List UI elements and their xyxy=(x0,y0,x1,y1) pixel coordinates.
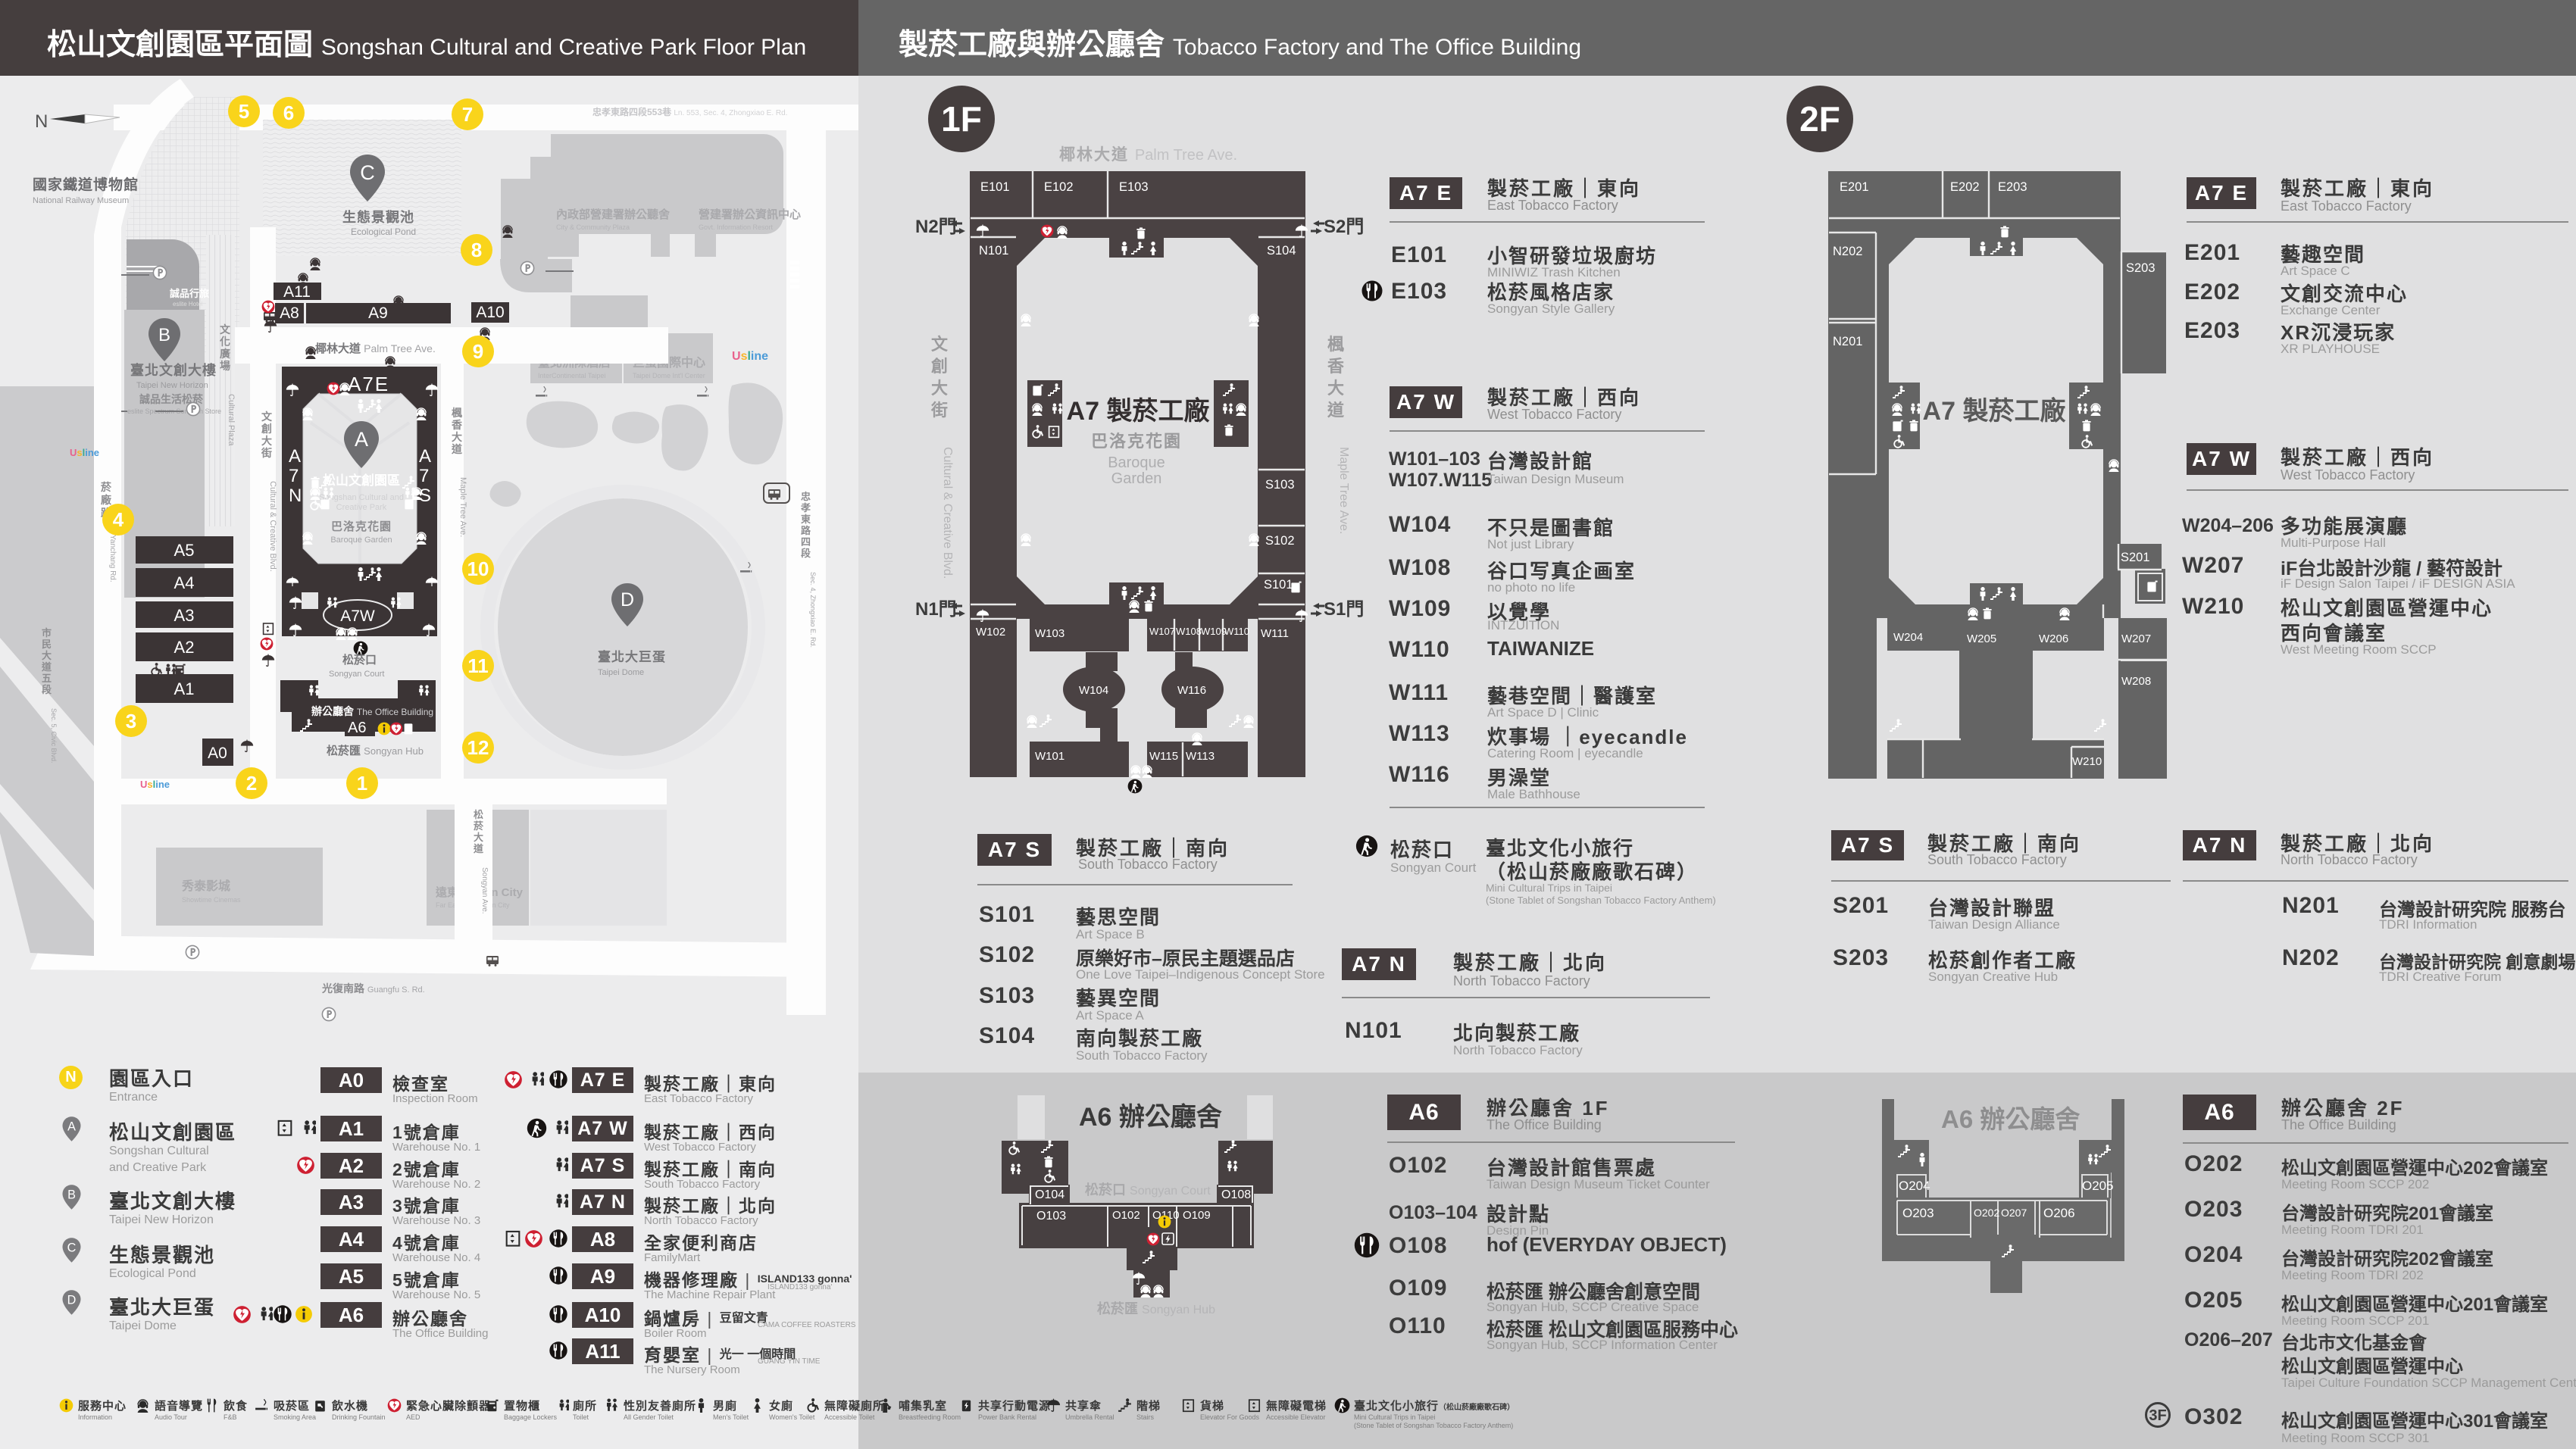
svg-text:Baroque: Baroque xyxy=(1108,454,1165,471)
svg-text:Cultural & Creative Blvd.: Cultural & Creative Blvd. xyxy=(268,481,277,572)
svg-text:10: 10 xyxy=(467,557,489,580)
svg-text:文化廣場: 文化廣場 xyxy=(220,323,231,372)
svg-text:松菸口: 松菸口 xyxy=(342,653,377,667)
svg-text:1F: 1F xyxy=(941,99,982,139)
svg-text:W210: W210 xyxy=(2072,755,2102,768)
svg-text:O102: O102 xyxy=(1112,1209,1140,1222)
svg-text:松菸匯 Songyan Hub: 松菸匯 Songyan Hub xyxy=(327,744,424,757)
svg-text:A8: A8 xyxy=(280,304,299,322)
svg-text:楓香大道: 楓香大道 xyxy=(451,407,463,455)
svg-text:N202: N202 xyxy=(1833,245,1862,258)
svg-text:S104: S104 xyxy=(1267,244,1296,258)
svg-text:市民大道五段: 市民大道五段 xyxy=(41,627,52,695)
svg-text:E202: E202 xyxy=(1950,180,1980,194)
svg-text:A6: A6 xyxy=(348,720,366,736)
svg-text:文創大街: 文創大街 xyxy=(930,335,949,420)
svg-text:E103: E103 xyxy=(1119,180,1149,194)
svg-text:A5: A5 xyxy=(174,541,195,560)
svg-text:A4: A4 xyxy=(174,573,195,592)
svg-text:誠品行旅: 誠品行旅 xyxy=(170,288,209,299)
svg-text:椰林大道 Palm Tree Ave.: 椰林大道 Palm Tree Ave. xyxy=(315,342,436,355)
svg-text:巴洛克花園: 巴洛克花園 xyxy=(331,520,392,533)
svg-text:O103: O103 xyxy=(1036,1210,1066,1223)
svg-text:Taipei New Horizon: Taipei New Horizon xyxy=(136,381,208,390)
svg-text:S203: S203 xyxy=(2126,261,2156,275)
svg-text:巴洛克花園: 巴洛克花園 xyxy=(1091,432,1182,451)
svg-text:營建署辦公資訊中心: 營建署辦公資訊中心 xyxy=(699,208,801,221)
svg-text:E101: E101 xyxy=(980,180,1010,194)
svg-text:Garden: Garden xyxy=(1111,470,1162,487)
svg-text:生態景觀池: 生態景觀池 xyxy=(342,209,414,225)
svg-text:A3: A3 xyxy=(174,606,195,625)
svg-text:Govt. Information Resort: Govt. Information Resort xyxy=(699,223,774,231)
svg-text:W109: W109 xyxy=(1201,626,1227,637)
svg-text:Usline: Usline xyxy=(70,447,99,458)
svg-text:Maple Tree Ave.: Maple Tree Ave. xyxy=(1337,447,1350,534)
svg-text:B: B xyxy=(67,1188,76,1201)
svg-text:eslite Hotel: eslite Hotel xyxy=(173,301,203,308)
svg-text:松菸大道: 松菸大道 xyxy=(473,809,484,854)
svg-text:N201: N201 xyxy=(1833,335,1862,348)
svg-text:Maple Tree Ave.: Maple Tree Ave. xyxy=(458,477,467,537)
svg-text:A0: A0 xyxy=(208,745,227,762)
svg-text:W104: W104 xyxy=(1079,684,1108,697)
svg-text:W115: W115 xyxy=(1149,750,1178,763)
svg-text:A6 辦公廳舍: A6 辦公廳舍 xyxy=(1941,1105,2080,1133)
svg-text:InterContinental Taipei: InterContinental Taipei xyxy=(538,372,605,379)
svg-text:秀泰影城: 秀泰影城 xyxy=(181,879,230,893)
svg-text:Taipei Dome Int'l Center: Taipei Dome Int'l Center xyxy=(633,372,705,379)
svg-text:W207: W207 xyxy=(2121,632,2151,645)
svg-text:W108: W108 xyxy=(1176,626,1202,637)
svg-text:Usline: Usline xyxy=(732,350,768,363)
svg-text:O207: O207 xyxy=(2001,1207,2027,1219)
svg-text:S101: S101 xyxy=(1264,578,1293,592)
svg-text:N1門: N1門 xyxy=(915,599,957,620)
svg-text:E203: E203 xyxy=(1998,180,2027,194)
svg-text:O206: O206 xyxy=(2043,1206,2075,1220)
svg-text:C: C xyxy=(360,161,375,184)
svg-text:文創大街: 文創大街 xyxy=(261,411,273,459)
svg-text:Taipei Dome: Taipei Dome xyxy=(598,668,644,677)
svg-text:8: 8 xyxy=(471,239,482,261)
svg-text:Yanchang Rd.: Yanchang Rd. xyxy=(108,535,117,582)
svg-text:2F: 2F xyxy=(1799,99,1840,139)
svg-text:12: 12 xyxy=(467,736,489,759)
svg-text:Creative Park: Creative Park xyxy=(336,503,387,512)
svg-text:A: A xyxy=(355,428,368,451)
svg-text:W107: W107 xyxy=(1149,626,1175,637)
svg-text:11: 11 xyxy=(467,654,489,677)
svg-text:B: B xyxy=(158,325,170,345)
svg-text:國家鐵道博物館: 國家鐵道博物館 xyxy=(33,176,139,193)
svg-text:臺北文創大樓: 臺北文創大樓 xyxy=(130,362,217,378)
svg-text:City & Community Plaza: City & Community Plaza xyxy=(556,223,630,231)
svg-text:E102: E102 xyxy=(1044,180,1074,194)
svg-text:9: 9 xyxy=(473,340,483,363)
svg-text:W205: W205 xyxy=(1967,632,1996,645)
svg-text:A2: A2 xyxy=(174,638,195,657)
svg-text:E201: E201 xyxy=(1840,180,1869,194)
svg-text:A7E: A7E xyxy=(348,373,389,395)
svg-text:Cultural & Creative Blvd.: Cultural & Creative Blvd. xyxy=(941,447,954,579)
svg-text:O202: O202 xyxy=(1974,1207,1999,1219)
svg-text:S201: S201 xyxy=(2121,551,2150,564)
svg-text:O204: O204 xyxy=(1899,1179,1930,1193)
svg-text:N2門: N2門 xyxy=(915,217,957,237)
svg-text:A7 製菸工廠: A7 製菸工廠 xyxy=(1923,396,2066,426)
svg-text:A: A xyxy=(67,1120,76,1133)
svg-text:Usline: Usline xyxy=(140,779,170,790)
svg-text:W113: W113 xyxy=(1186,750,1215,763)
svg-text:S1門: S1門 xyxy=(1324,599,1364,620)
svg-text:松菸匯 Songyan Hub: 松菸匯 Songyan Hub xyxy=(1097,1301,1215,1316)
svg-text:W206: W206 xyxy=(2039,632,2068,645)
svg-text:W208: W208 xyxy=(2121,675,2151,688)
svg-text:A9: A9 xyxy=(368,304,388,322)
svg-text:Songyan Court: Songyan Court xyxy=(329,670,384,679)
svg-text:1: 1 xyxy=(357,772,367,795)
svg-text:N: N xyxy=(35,111,48,132)
svg-text:臺北大巨蛋: 臺北大巨蛋 xyxy=(598,649,666,664)
svg-text:5: 5 xyxy=(239,100,249,123)
svg-text:忠孝東路四段: 忠孝東路四段 xyxy=(800,491,811,559)
svg-text:W110: W110 xyxy=(1224,626,1249,637)
svg-text:O108: O108 xyxy=(1221,1188,1251,1201)
svg-text:Ecological Pond: Ecological Pond xyxy=(351,226,416,237)
svg-text:D: D xyxy=(67,1293,77,1307)
svg-text:S103: S103 xyxy=(1265,478,1295,492)
svg-text:O109: O109 xyxy=(1183,1209,1211,1222)
svg-text:A7 製菸工廠: A7 製菸工廠 xyxy=(1067,396,1210,426)
svg-text:椰林大道 Palm Tree Ave.: 椰林大道 Palm Tree Ave. xyxy=(1059,145,1237,164)
svg-text:辦公廳舍 The Office Building: 辦公廳舍 The Office Building xyxy=(311,705,433,717)
svg-text:Sec. 4, Zhongxiao E. Rd.: Sec. 4, Zhongxiao E. Rd. xyxy=(809,572,817,648)
svg-text:S102: S102 xyxy=(1265,534,1295,548)
svg-text:2: 2 xyxy=(246,772,257,795)
svg-text:3: 3 xyxy=(126,710,136,732)
svg-text:A10: A10 xyxy=(476,304,504,321)
svg-text:楓香大道: 楓香大道 xyxy=(1327,335,1345,420)
svg-text:Baroque Garden: Baroque Garden xyxy=(330,536,392,545)
svg-text:A6 辦公廳舍: A6 辦公廳舍 xyxy=(1079,1102,1222,1132)
svg-text:Showtime Cinemas: Showtime Cinemas xyxy=(182,896,241,904)
svg-text:Sec. 5, Civic Blvd.: Sec. 5, Civic Blvd. xyxy=(50,708,58,764)
svg-text:D: D xyxy=(621,589,634,611)
svg-text:W111: W111 xyxy=(1261,627,1289,640)
svg-text:A11: A11 xyxy=(283,283,311,301)
svg-text:Cultural Plaza: Cultural Plaza xyxy=(227,394,236,446)
svg-text:A7W: A7W xyxy=(340,607,375,625)
svg-text:S2門: S2門 xyxy=(1324,217,1364,237)
svg-text:O104: O104 xyxy=(1035,1188,1064,1201)
svg-text:6: 6 xyxy=(283,101,294,124)
svg-text:A1: A1 xyxy=(174,679,195,698)
svg-text:內政部營建署辦公聽舍: 內政部營建署辦公聽舍 xyxy=(556,208,671,221)
svg-text:National Railway Museum: National Railway Museum xyxy=(33,196,129,205)
svg-text:4: 4 xyxy=(113,508,124,531)
svg-text:W204: W204 xyxy=(1893,631,1923,644)
svg-text:N101: N101 xyxy=(979,244,1008,258)
svg-text:7: 7 xyxy=(462,103,473,126)
svg-text:W102: W102 xyxy=(976,626,1005,639)
svg-text:O203: O203 xyxy=(1902,1206,1934,1220)
svg-text:W116: W116 xyxy=(1177,684,1206,697)
svg-text:松山文創園區: 松山文創園區 xyxy=(323,473,400,488)
svg-text:O205: O205 xyxy=(2082,1179,2114,1193)
svg-text:W103: W103 xyxy=(1035,627,1064,640)
svg-text:W101: W101 xyxy=(1035,750,1064,763)
svg-text:C: C xyxy=(67,1241,77,1254)
svg-text:Songyan Ave.: Songyan Ave. xyxy=(480,867,489,914)
svg-text:松菸口 Songyan Court: 松菸口 Songyan Court xyxy=(1085,1182,1211,1198)
